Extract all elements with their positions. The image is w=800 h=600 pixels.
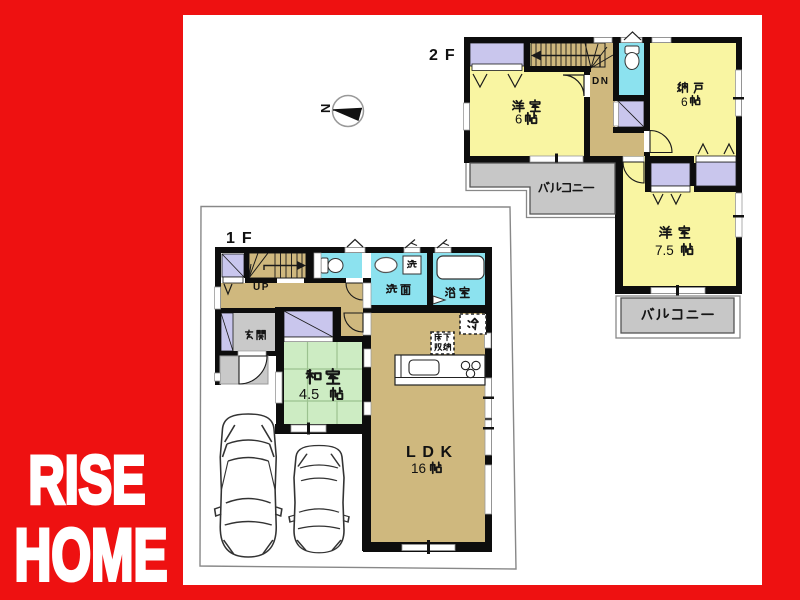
- svg-text:N: N: [318, 104, 333, 113]
- svg-text:7.5: 7.5: [655, 243, 674, 258]
- svg-text:HOME: HOME: [15, 515, 168, 596]
- svg-text:2F: 2F: [429, 47, 462, 64]
- svg-text:16: 16: [411, 461, 426, 476]
- svg-text:DN: DN: [592, 76, 609, 87]
- svg-text:RISE: RISE: [29, 442, 146, 518]
- svg-text:6: 6: [515, 112, 522, 127]
- svg-text:1F: 1F: [226, 230, 259, 247]
- svg-text:UP: UP: [253, 282, 270, 293]
- svg-text:4.5: 4.5: [299, 387, 319, 403]
- svg-text:6: 6: [681, 95, 688, 109]
- svg-text:LDK: LDK: [406, 444, 452, 461]
